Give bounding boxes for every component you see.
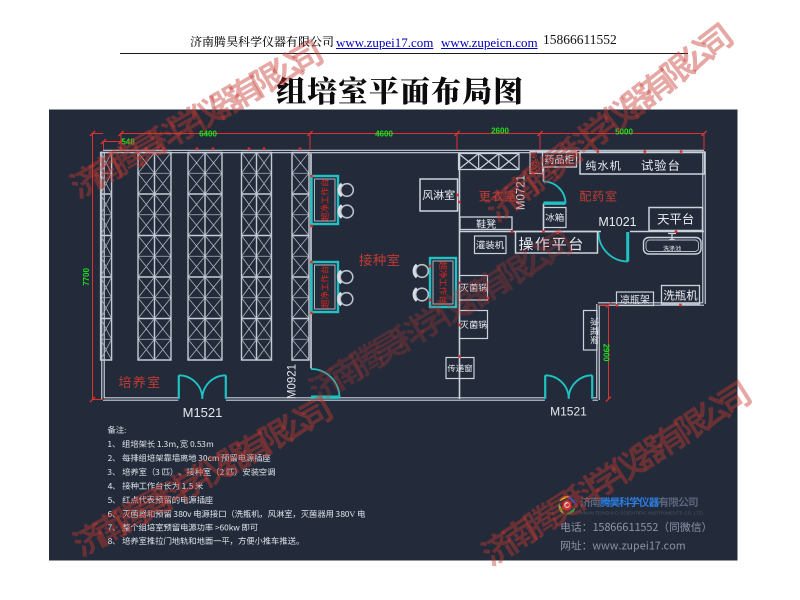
svg-text:2600: 2600 (491, 127, 509, 136)
svg-text:天平台: 天平台 (657, 209, 695, 228)
svg-text:M1021: M1021 (598, 215, 636, 229)
svg-text:1、 组培架长 1.3m, 宽 0.53m: 1、 组培架长 1.3m, 宽 0.53m (108, 438, 214, 450)
svg-text:超净工作台: 超净工作台 (319, 265, 331, 308)
svg-text:传递窗: 传递窗 (447, 363, 473, 375)
svg-text:网址：www.zupei17.com: 网址：www.zupei17.com (560, 538, 686, 554)
svg-text:M1521: M1521 (550, 405, 587, 419)
svg-text:7700: 7700 (82, 268, 91, 286)
svg-text:电话：15866611552（同微信）: 电话：15866611552（同微信） (560, 519, 712, 535)
svg-text:配药室: 配药室 (579, 188, 617, 205)
svg-text:备注:: 备注: (107, 424, 127, 436)
svg-text:灌装机: 灌装机 (476, 238, 505, 252)
svg-text:M1521: M1521 (183, 405, 223, 420)
svg-text:洗涤池: 洗涤池 (663, 244, 681, 253)
svg-text:洗瓶机: 洗瓶机 (663, 288, 698, 304)
svg-text:超净工作台: 超净工作台 (319, 178, 331, 221)
svg-text:凉瓶架: 凉瓶架 (620, 291, 650, 306)
svg-text:M0921: M0921 (287, 364, 299, 399)
svg-text:4600: 4600 (375, 130, 393, 139)
svg-text:2900: 2900 (602, 344, 611, 362)
svg-text:风淋室: 风淋室 (422, 187, 455, 203)
svg-text:接种室: 接种室 (359, 249, 400, 269)
svg-text:试验台: 试验台 (641, 155, 682, 174)
svg-text:培养室: 培养室 (119, 372, 162, 391)
svg-text:凉瓶架: 凉瓶架 (588, 317, 601, 344)
svg-text:JINAN TENGHAO SCIENTIFIC INSTR: JINAN TENGHAO SCIENTIFIC INSTRUMENTS CO.… (580, 511, 704, 517)
